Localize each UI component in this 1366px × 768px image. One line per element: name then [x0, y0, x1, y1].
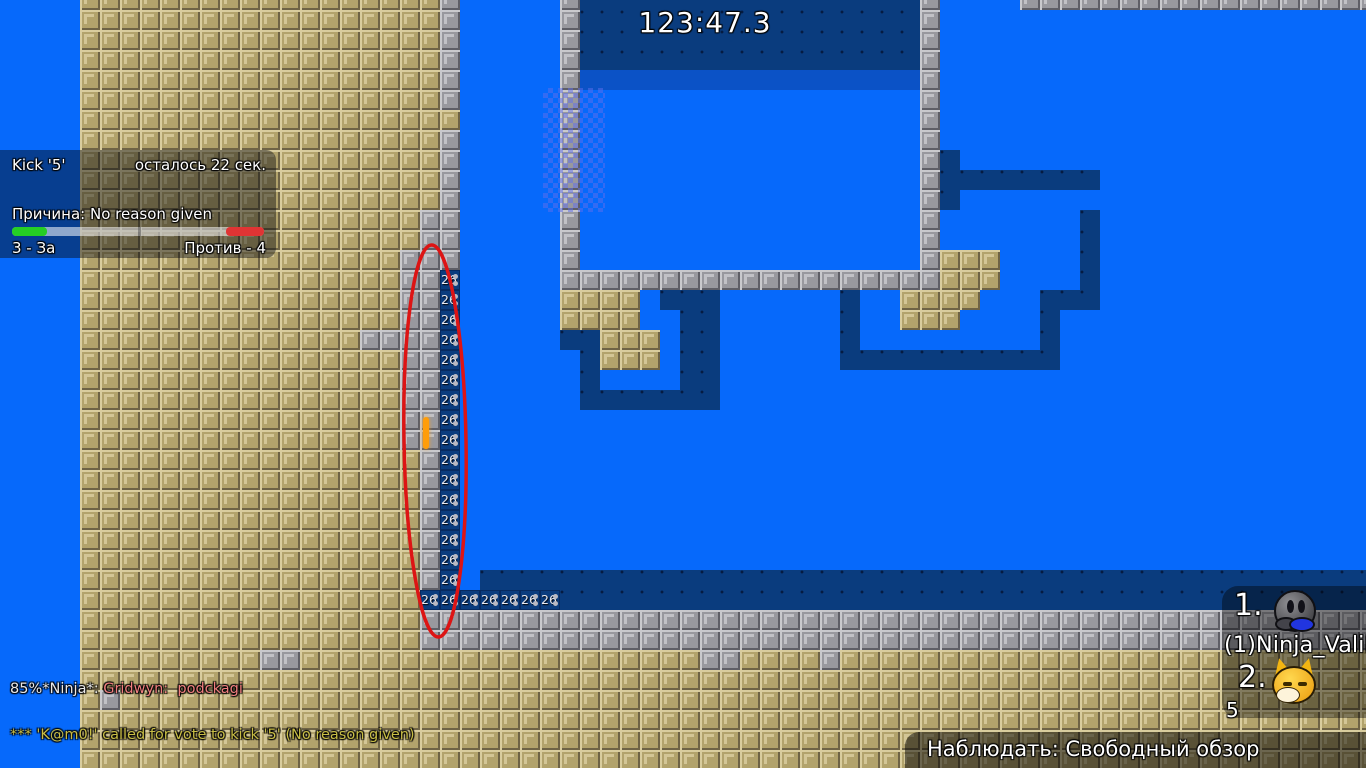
- vote-bar-yes: [12, 227, 47, 236]
- vote-time-left: осталось 22 сек.: [135, 156, 266, 174]
- chat-log: 85%*Ninja*: Gridwyn: podckagi *** 'K@m0!…: [10, 651, 415, 768]
- tele-tile: 26: [540, 590, 560, 610]
- spectate-bar: Наблюдать: Свободный обзор: [905, 732, 1366, 768]
- race-timer: 123:47.3: [520, 6, 890, 39]
- vote-no-label: Против - 4: [184, 239, 266, 257]
- spectator-rank-2: 2.: [1238, 660, 1267, 695]
- spectator-name-3: 5: [1226, 698, 1239, 722]
- tele-tile: 26: [480, 590, 500, 610]
- game-screen: 2626262626262626262626262626262626262626…: [0, 0, 1366, 768]
- vote-yes-label: 3 - За: [12, 239, 55, 257]
- vote-bar-no: [226, 227, 264, 236]
- vote-bar-midmark: [138, 227, 141, 236]
- vote-title: Kick '5': [12, 156, 66, 174]
- spectator-panel: 1. (1)Ninja_Valik 2. 5: [1222, 586, 1366, 718]
- spectator-name-1: (1)Ninja_Valik: [1224, 632, 1366, 658]
- vote-progress-bar: [12, 227, 264, 236]
- tele-tile: 26: [520, 590, 540, 610]
- red-circle-annotation: [398, 240, 472, 644]
- vote-reason: Причина: No reason given: [12, 205, 212, 223]
- checker-entity-overlay: [543, 88, 605, 212]
- vote-hud: Kick '5' осталось 22 сек. Причина: No re…: [0, 150, 276, 258]
- gray-tee-avatar: [1272, 588, 1318, 634]
- tele-tile: 26: [500, 590, 520, 610]
- spectator-rank-1: 1.: [1234, 588, 1263, 623]
- fox-tee-avatar: [1270, 658, 1318, 706]
- chat-line: *** 'K@m0!' called for vote to kick '5' …: [10, 728, 415, 743]
- spectate-label: Наблюдать: Свободный обзор: [927, 737, 1259, 761]
- chat-line: 85%*Ninja*: Gridwyn: podckagi: [10, 682, 415, 697]
